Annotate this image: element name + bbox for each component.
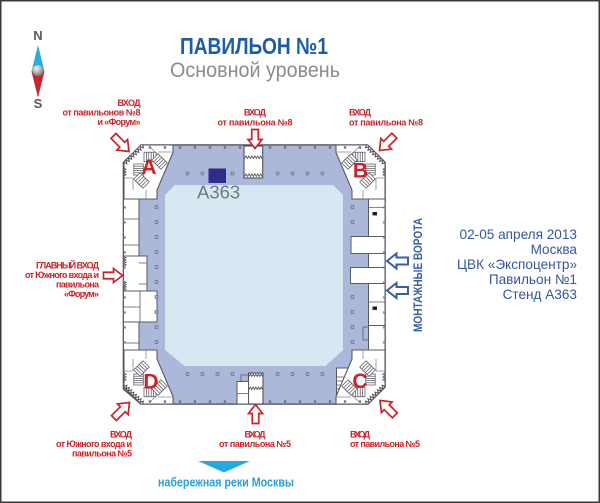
svg-text:ЦВК «Экспоцентр»: ЦВК «Экспоцентр»: [457, 257, 577, 272]
svg-text:от павильона №8: от павильона №8: [218, 118, 293, 128]
svg-text:от павильонов №8: от павильонов №8: [63, 108, 141, 118]
svg-text:A: A: [141, 156, 156, 179]
svg-text:от павильона №5: от павильона №5: [219, 439, 291, 449]
svg-text:S: S: [34, 96, 43, 111]
svg-text:B: B: [353, 160, 368, 183]
svg-text:набережная реки Москвы: набережная реки Москвы: [158, 476, 294, 490]
svg-text:ВХОД: ВХОД: [245, 430, 267, 440]
svg-text:ВХОД: ВХОД: [110, 430, 133, 440]
svg-text:павильона №5: павильона №5: [72, 449, 132, 459]
svg-text:Стенд А363: Стенд А363: [503, 287, 577, 302]
svg-text:от павильона №5: от павильона №5: [350, 439, 420, 449]
svg-text:ВХОД: ВХОД: [350, 430, 371, 440]
svg-text:ВХОД: ВХОД: [349, 108, 372, 118]
svg-text:02-05 апреля 2013: 02-05 апреля 2013: [460, 227, 577, 242]
svg-text:ГЛАВНЫЙ ВХОД: ГЛАВНЫЙ ВХОД: [36, 260, 100, 271]
svg-text:от павильона №8: от павильона №8: [349, 118, 423, 128]
svg-text:ПАВИЛЬОН №1: ПАВИЛЬОН №1: [180, 33, 328, 59]
svg-text:Павильон №1: Павильон №1: [489, 272, 577, 287]
svg-text:и «Форум»: и «Форум»: [98, 117, 141, 127]
svg-text:A363: A363: [197, 182, 240, 203]
svg-text:N: N: [33, 28, 42, 43]
svg-text:«Форум»: «Форум»: [64, 289, 99, 299]
svg-text:C: C: [352, 370, 367, 393]
svg-text:от Южного входа и: от Южного входа и: [25, 270, 99, 280]
svg-text:Москва: Москва: [531, 242, 578, 257]
svg-text:павильона: павильона: [56, 280, 100, 290]
svg-text:от Южного входа и: от Южного входа и: [56, 439, 132, 449]
svg-text:ВХОД: ВХОД: [244, 108, 267, 118]
svg-text:Основной уровень: Основной уровень: [170, 58, 340, 82]
svg-text:D: D: [143, 371, 158, 394]
svg-text:ВХОД: ВХОД: [118, 98, 142, 108]
svg-text:МОНТАЖНЫЕ ВОРОТА: МОНТАЖНЫЕ ВОРОТА: [413, 218, 425, 332]
